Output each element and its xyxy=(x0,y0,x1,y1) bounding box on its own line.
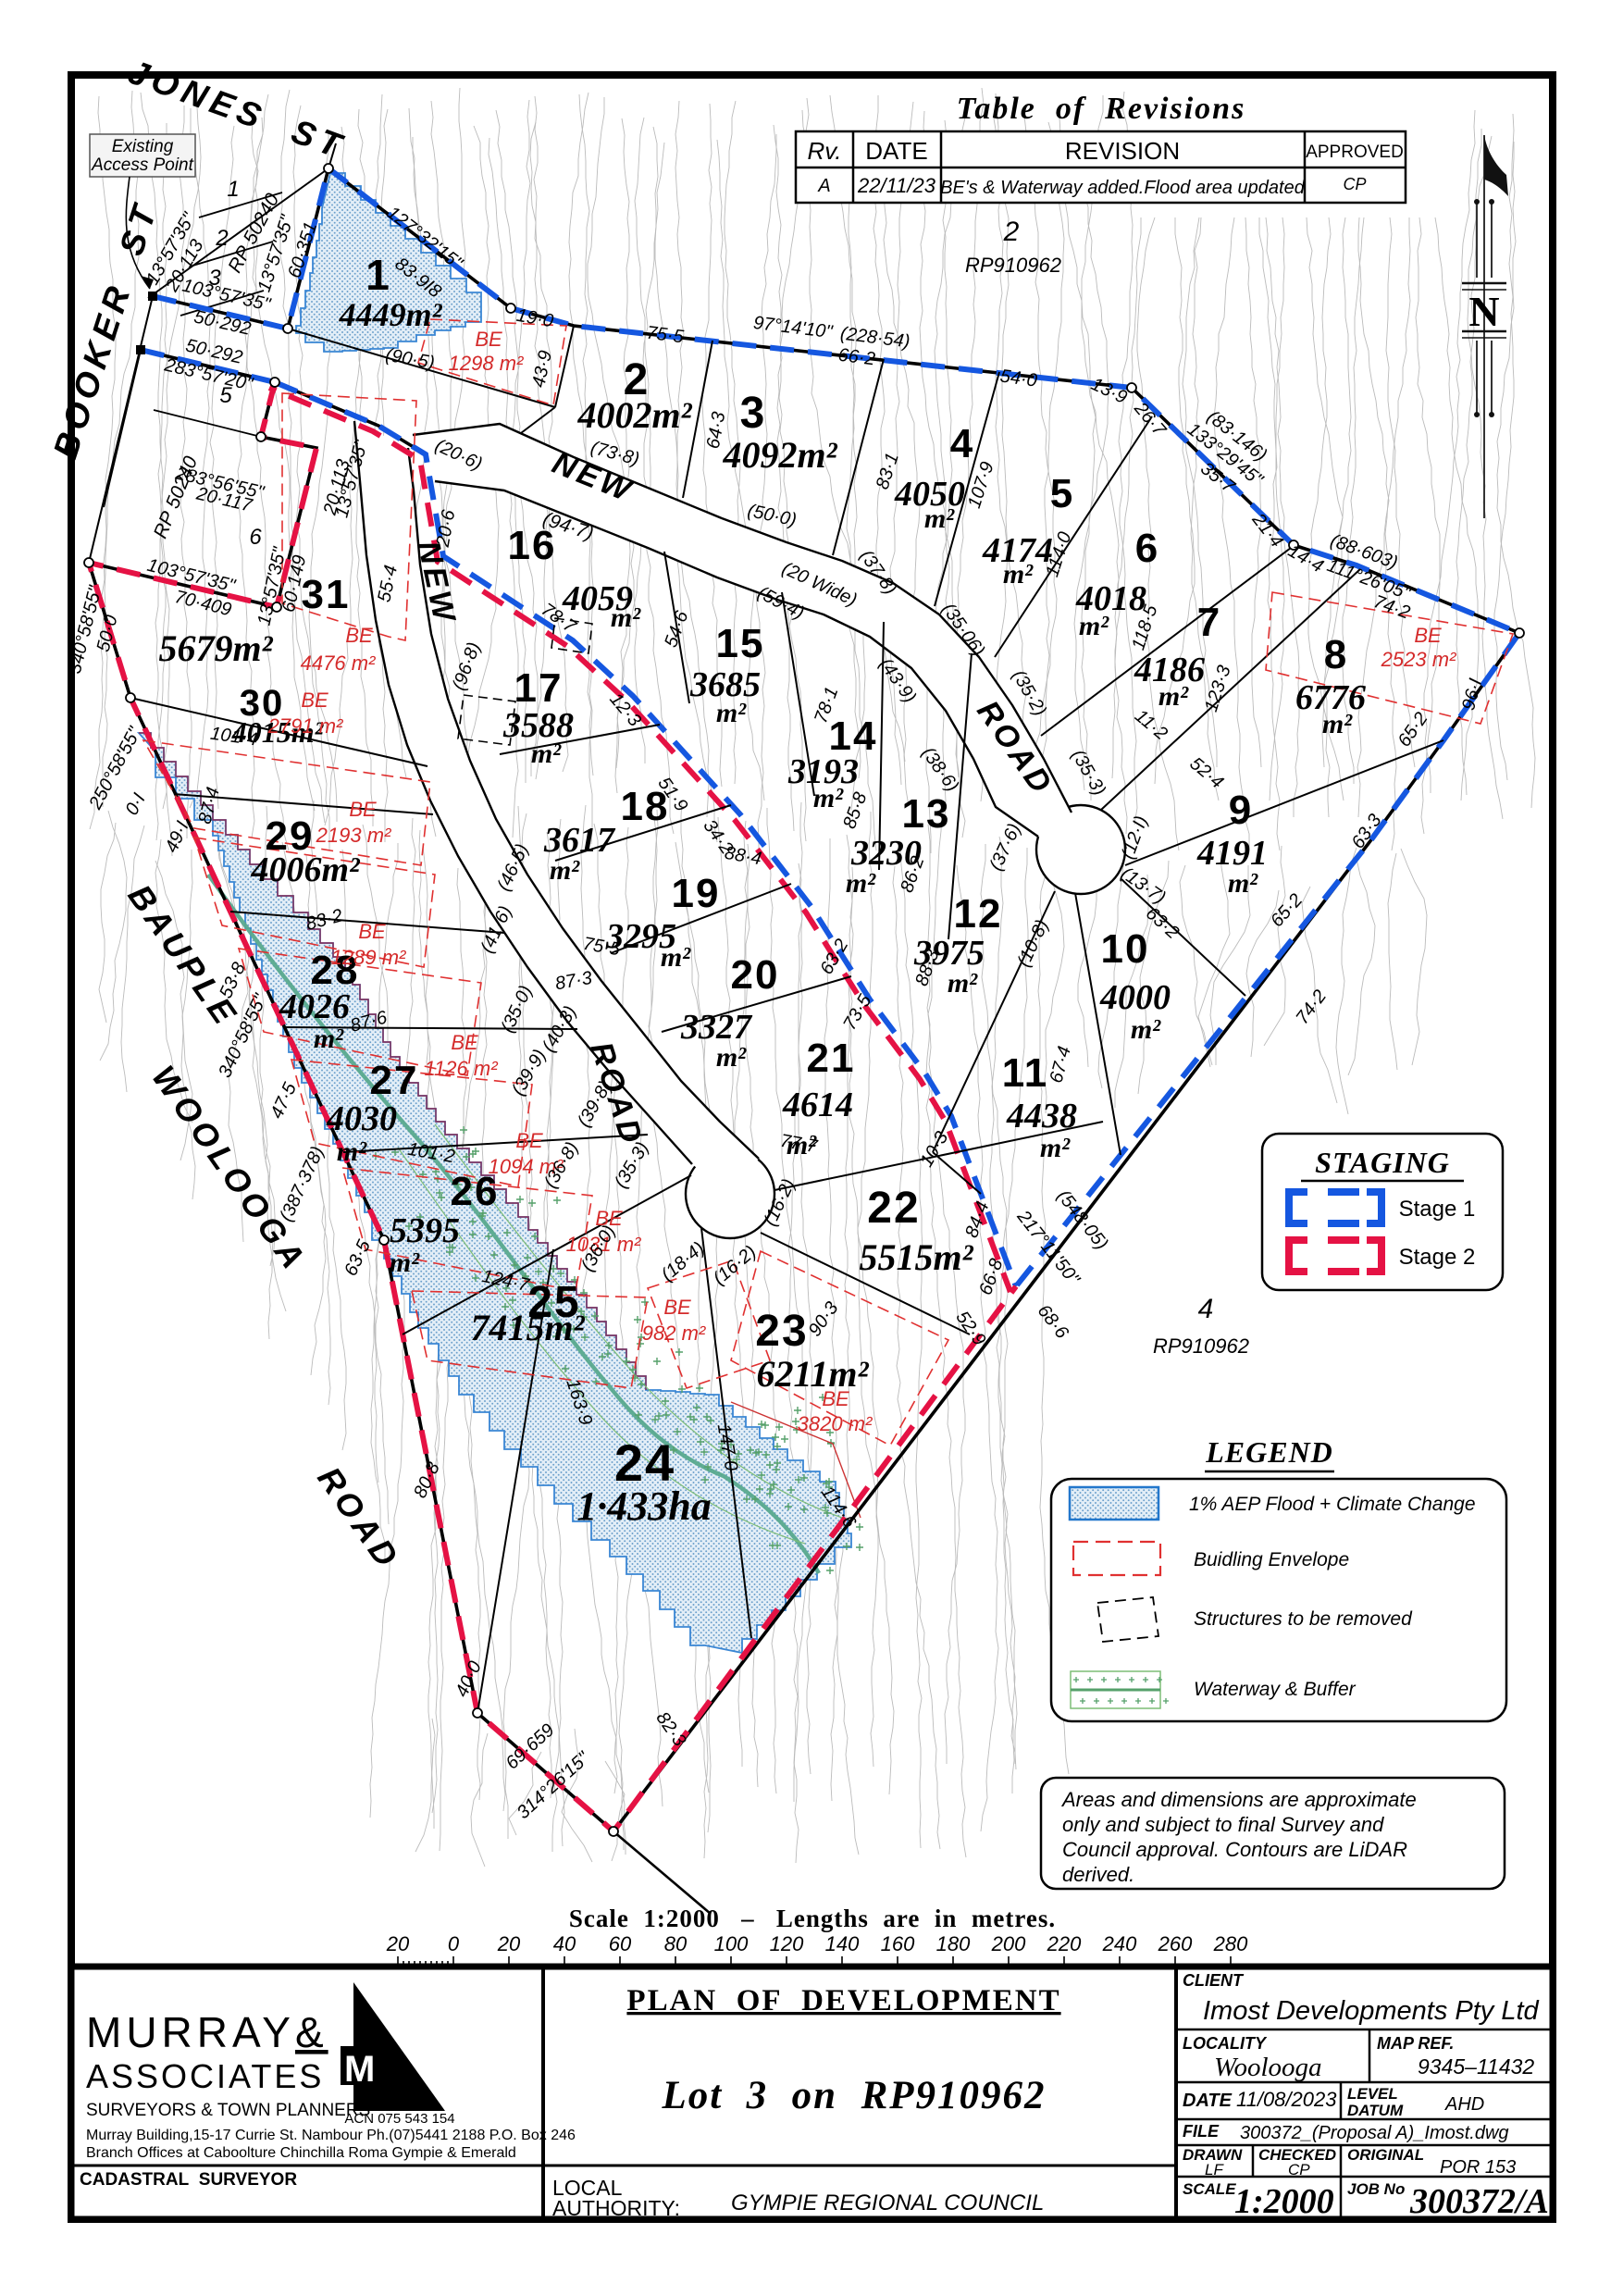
svg-text:m²: m² xyxy=(846,868,876,899)
svg-text:6: 6 xyxy=(249,525,262,550)
svg-text:BE: BE xyxy=(345,624,373,647)
svg-text:Stage 1: Stage 1 xyxy=(1399,1197,1476,1222)
svg-text:140: 140 xyxy=(825,1932,860,1955)
svg-text:1:2000: 1:2000 xyxy=(1234,2182,1334,2221)
svg-text:m²: m² xyxy=(1322,709,1353,739)
svg-text:Council approval. Contours are: Council approval. Contours are LiDAR xyxy=(1062,1838,1407,1861)
svg-text:5: 5 xyxy=(1050,471,1074,516)
svg-text:3820 m²: 3820 m² xyxy=(798,1412,873,1435)
svg-text:Buidling Envelope: Buidling Envelope xyxy=(1194,1549,1349,1570)
svg-text:Scale 1:2000 – Lengths a: Scale 1:2000 – Lengths are in metres. xyxy=(569,1905,1056,1932)
svg-text:BE: BE xyxy=(301,689,328,712)
svg-text:m²: m² xyxy=(337,1136,367,1167)
svg-text:280: 280 xyxy=(1213,1932,1248,1955)
svg-text:5679m²: 5679m² xyxy=(158,627,273,669)
svg-text:BE: BE xyxy=(475,328,502,351)
svg-text:DATE: DATE xyxy=(1183,2091,1233,2111)
svg-text:80: 80 xyxy=(664,1932,688,1955)
svg-text:2: 2 xyxy=(1003,217,1020,247)
svg-text:only and subject to final Surv: only and subject to final Survey and xyxy=(1062,1813,1384,1836)
svg-text:BE's & Waterway added.Flood ar: BE's & Waterway added.Flood area updated xyxy=(940,178,1306,198)
svg-text:LEGEND: LEGEND xyxy=(1205,1435,1333,1469)
svg-text:BE: BE xyxy=(515,1129,543,1152)
svg-text:Areas and dimensions are appro: Areas and dimensions are approximate xyxy=(1060,1788,1417,1811)
svg-text:Structures to be removed: Structures to be removed xyxy=(1194,1608,1413,1630)
svg-text:BE: BE xyxy=(663,1296,691,1319)
svg-text:12: 12 xyxy=(954,891,1003,937)
svg-text:CP: CP xyxy=(1343,175,1366,193)
svg-text:m²: m² xyxy=(550,855,580,886)
svg-text:4092m²: 4092m² xyxy=(722,434,837,476)
svg-text:A: A xyxy=(817,176,830,196)
svg-text:m²: m² xyxy=(390,1247,420,1278)
svg-text:POR 153: POR 153 xyxy=(1440,2157,1516,2178)
svg-text:derived.: derived. xyxy=(1062,1863,1134,1886)
svg-text:100: 100 xyxy=(714,1932,749,1955)
svg-text:4: 4 xyxy=(950,421,974,466)
svg-text:FILE: FILE xyxy=(1183,2122,1220,2141)
svg-text:MAP REF.: MAP REF. xyxy=(1377,2034,1454,2053)
svg-text:ASSOCIATES: ASSOCIATES xyxy=(86,2057,324,2095)
svg-text:300372/A: 300372/A xyxy=(1409,2182,1549,2221)
svg-text:Waterway & Buffer: Waterway & Buffer xyxy=(1194,1679,1357,1700)
svg-text:20: 20 xyxy=(386,1932,410,1955)
svg-text:DATE: DATE xyxy=(865,137,927,165)
svg-text:Access Point: Access Point xyxy=(91,155,194,175)
svg-text:9345–11432: 9345–11432 xyxy=(1418,2054,1534,2079)
svg-text:20: 20 xyxy=(731,952,780,998)
svg-text:LF: LF xyxy=(1205,2161,1224,2178)
svg-text:4438: 4438 xyxy=(1006,1097,1077,1136)
svg-text:40: 40 xyxy=(553,1932,576,1955)
svg-text:4026: 4026 xyxy=(279,987,350,1026)
svg-text:DATUM: DATUM xyxy=(1347,2102,1404,2119)
svg-text:RP910962: RP910962 xyxy=(1153,1334,1249,1358)
svg-text:GYMPIE REGIONAL COUNCIL: GYMPIE REGIONAL COUNCIL xyxy=(731,2191,1044,2215)
svg-text:4000: 4000 xyxy=(1099,978,1171,1017)
svg-text:CP: CP xyxy=(1288,2161,1310,2178)
svg-text:SURVEYORS & TOWN PLANNERS: SURVEYORS & TOWN PLANNERS xyxy=(86,2101,370,2120)
svg-text:m²: m² xyxy=(1158,681,1189,712)
svg-text:PLAN OF DEVELOPMENT: PLAN OF DEVELOPMENT xyxy=(626,1984,1060,2017)
svg-text:Woolooga: Woolooga xyxy=(1214,2053,1322,2082)
svg-text:1289 m²: 1289 m² xyxy=(331,946,406,969)
svg-text:4030: 4030 xyxy=(326,1099,397,1138)
svg-text:2193 m²: 2193 m² xyxy=(316,824,391,847)
svg-text:N: N xyxy=(1468,288,1499,335)
svg-text:11: 11 xyxy=(1002,1050,1049,1096)
svg-text:300372_(Proposal A)_Imost.dwg: 300372_(Proposal A)_Imost.dwg xyxy=(1240,2123,1509,2143)
svg-text:JOB No: JOB No xyxy=(1347,2180,1405,2198)
svg-text:Branch Offices at Caboolture C: Branch Offices at Caboolture Chinchilla … xyxy=(86,2145,516,2161)
svg-text:AUTHORITY:: AUTHORITY: xyxy=(552,2196,680,2220)
svg-text:120: 120 xyxy=(770,1932,804,1955)
svg-text:CADASTRAL SURVEYOR: CADASTRAL SURVEYOR xyxy=(80,2170,297,2190)
svg-text:m²: m² xyxy=(716,698,747,728)
svg-text:5395: 5395 xyxy=(390,1211,460,1250)
svg-text:4476 m²: 4476 m² xyxy=(301,652,376,675)
svg-text:9: 9 xyxy=(1229,788,1253,833)
svg-text:15: 15 xyxy=(716,621,765,666)
svg-text:20: 20 xyxy=(497,1932,521,1955)
svg-text:2791 m²: 2791 m² xyxy=(267,714,343,738)
svg-text:3617: 3617 xyxy=(543,821,616,860)
svg-text:17: 17 xyxy=(514,665,564,711)
svg-text:ACN 075 543 154: ACN 075 543 154 xyxy=(344,2111,454,2127)
svg-text:4: 4 xyxy=(1198,1294,1214,1324)
svg-text:1: 1 xyxy=(227,177,239,202)
svg-text:4449m²: 4449m² xyxy=(339,296,443,333)
svg-text:2523 m²: 2523 m² xyxy=(1381,648,1456,671)
svg-text:1·433ha: 1·433ha xyxy=(576,1483,711,1529)
svg-text:RP910962: RP910962 xyxy=(965,254,1061,277)
svg-text:5515m²: 5515m² xyxy=(859,1236,973,1278)
svg-text:m²: m² xyxy=(716,1042,747,1073)
svg-text:m²: m² xyxy=(1228,868,1258,899)
svg-text:1: 1 xyxy=(365,251,391,299)
svg-text:m²: m² xyxy=(813,783,844,813)
svg-text:CLIENT: CLIENT xyxy=(1183,1971,1245,1990)
svg-text:180: 180 xyxy=(936,1932,971,1955)
svg-text:240: 240 xyxy=(1102,1932,1137,1955)
svg-text:4614: 4614 xyxy=(782,1086,853,1124)
svg-text:13: 13 xyxy=(902,791,951,837)
svg-text:7: 7 xyxy=(1197,600,1221,645)
svg-text:23: 23 xyxy=(755,1307,808,1356)
svg-text:Lot 3 on RP910962: Lot 3 on RP910962 xyxy=(661,2074,1046,2117)
svg-text:6: 6 xyxy=(1135,526,1159,571)
svg-text:8: 8 xyxy=(1324,632,1348,677)
svg-text:Imost Developments Pty Ltd: Imost Developments Pty Ltd xyxy=(1203,1996,1540,2026)
svg-text:MURRAY&: MURRAY& xyxy=(86,2008,328,2056)
svg-text:ORIGINAL: ORIGINAL xyxy=(1347,2146,1424,2164)
svg-text:m²: m² xyxy=(661,942,691,973)
svg-text:m²: m² xyxy=(1079,611,1109,641)
svg-text:Table of Revisions: Table of Revisions xyxy=(957,92,1246,126)
svg-text:m²: m² xyxy=(948,968,978,999)
svg-text:200: 200 xyxy=(991,1932,1026,1955)
svg-text:REVISION: REVISION xyxy=(1065,137,1180,165)
svg-text:m²: m² xyxy=(1003,559,1034,590)
svg-text:Stage 2: Stage 2 xyxy=(1399,1245,1476,1270)
svg-text:STAGING: STAGING xyxy=(1315,1146,1450,1179)
svg-text:m²: m² xyxy=(924,503,955,534)
svg-text:m²: m² xyxy=(531,738,562,769)
svg-text:3: 3 xyxy=(740,389,767,438)
svg-text:BE: BE xyxy=(349,798,377,821)
svg-text:m²: m² xyxy=(1131,1014,1161,1045)
svg-text:BE: BE xyxy=(822,1387,849,1410)
svg-text:BE: BE xyxy=(1414,624,1442,647)
svg-text:27: 27 xyxy=(370,1058,419,1103)
svg-text:BE: BE xyxy=(451,1031,478,1054)
svg-text:3327: 3327 xyxy=(680,1008,753,1047)
svg-text:APPROVED: APPROVED xyxy=(1306,143,1404,162)
svg-text:m²: m² xyxy=(1040,1133,1071,1163)
svg-text:4006m²: 4006m² xyxy=(251,850,362,889)
svg-text:31: 31 xyxy=(302,572,351,617)
svg-text:260: 260 xyxy=(1158,1932,1193,1955)
svg-text:Existing: Existing xyxy=(112,137,174,156)
svg-text:19: 19 xyxy=(672,871,721,916)
svg-text:m²: m² xyxy=(314,1024,344,1054)
svg-text:m²: m² xyxy=(611,602,641,633)
svg-text:SCALE: SCALE xyxy=(1183,2180,1236,2198)
svg-text:22/11/23: 22/11/23 xyxy=(857,174,936,197)
svg-text:982 m²: 982 m² xyxy=(642,1322,706,1345)
svg-text:7415m²: 7415m² xyxy=(470,1307,585,1348)
svg-text:10: 10 xyxy=(1101,926,1150,972)
svg-text:AHD: AHD xyxy=(1444,2094,1484,2115)
svg-text:1126 m²: 1126 m² xyxy=(424,1057,498,1080)
svg-text:Murray Building,15-17 Currie S: Murray Building,15-17 Currie St. Nambour… xyxy=(86,2128,576,2143)
svg-text:60: 60 xyxy=(609,1932,632,1955)
svg-text:1298 m²: 1298 m² xyxy=(449,352,524,375)
svg-text:4002m²: 4002m² xyxy=(576,394,692,436)
svg-text:0: 0 xyxy=(448,1932,460,1955)
svg-text:4191: 4191 xyxy=(1196,834,1268,873)
svg-text:1% AEP Flood + Climate Change: 1% AEP Flood + Climate Change xyxy=(1189,1494,1476,1515)
svg-text:21: 21 xyxy=(807,1036,856,1081)
svg-text:LEVEL: LEVEL xyxy=(1347,2085,1398,2103)
svg-text:M: M xyxy=(344,2049,375,2090)
svg-text:22: 22 xyxy=(867,1184,920,1233)
svg-text:BE: BE xyxy=(358,920,386,943)
svg-text:Rv.: Rv. xyxy=(807,137,841,165)
svg-text:220: 220 xyxy=(1047,1932,1082,1955)
svg-text:11/08/2023: 11/08/2023 xyxy=(1236,2088,1337,2111)
svg-text:6211m²: 6211m² xyxy=(757,1353,870,1395)
svg-text:2: 2 xyxy=(215,226,228,251)
svg-text:160: 160 xyxy=(881,1932,915,1955)
svg-text:LOCALITY: LOCALITY xyxy=(1183,2034,1268,2053)
